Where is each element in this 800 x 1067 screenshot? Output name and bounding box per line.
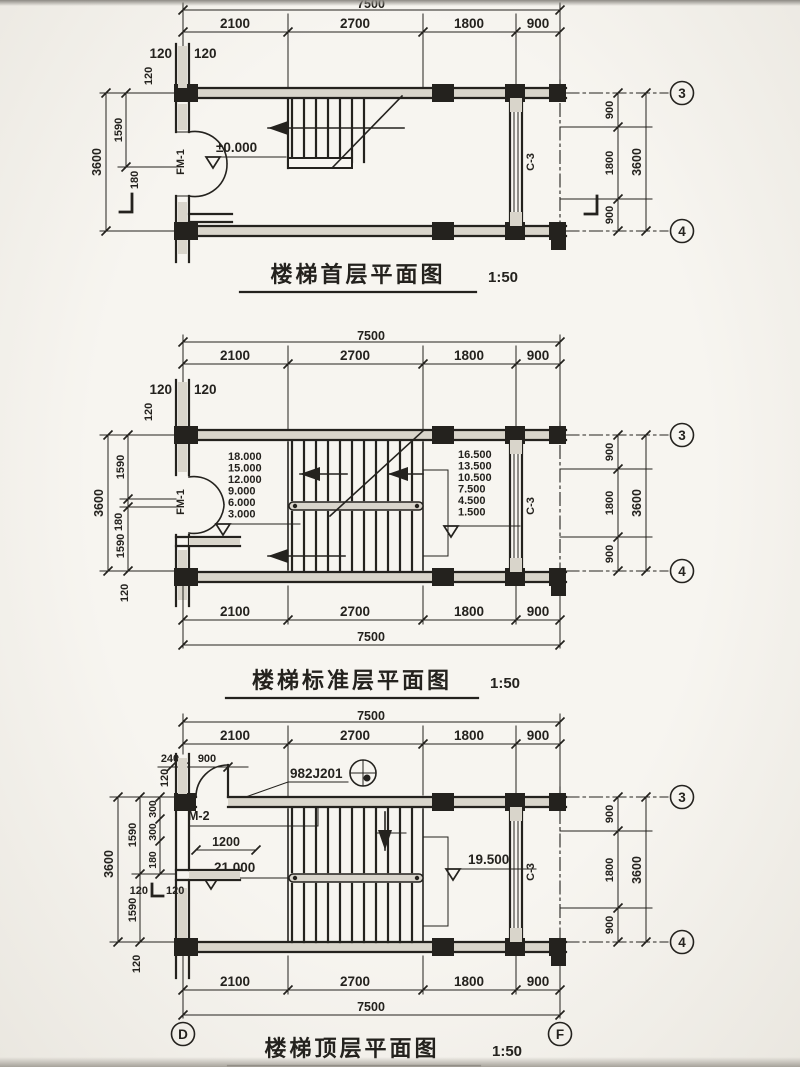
p3-dim-300a: 300: [147, 800, 159, 818]
p2-dim-1800b: 1800: [454, 604, 484, 619]
p3-dim-120-bottom: 120: [131, 955, 143, 973]
p2-level-9000: 9.000: [228, 486, 256, 498]
p2-title-text: 楼梯标准层平面图: [252, 668, 452, 693]
p1-dims-right: 900 1800 900 3600: [560, 80, 668, 246]
p3-dim-1200: 1200: [212, 835, 240, 849]
p3-dim-2700b: 2700: [340, 974, 370, 989]
p1-dim-r1800: 1800: [604, 151, 616, 175]
p3-window-label: C-3: [525, 863, 537, 881]
photo-edge-shadow-bottom: [0, 1057, 800, 1067]
p2-dim-1590a: 1590: [115, 455, 127, 479]
p1-dim-3600-right: 3600: [630, 148, 644, 176]
p3-dim-2100t: 2100: [220, 728, 250, 743]
p2-level-12000: 12.000: [228, 474, 262, 486]
p1-dim-1800: 1800: [454, 16, 484, 31]
axis-bubble-D: D: [178, 1027, 188, 1042]
p2-dim-1800t: 1800: [454, 348, 484, 363]
p1-title-scale: 1:50: [488, 269, 518, 286]
p3-dim-total-top: 7500: [357, 709, 385, 723]
p2-title-scale: 1:50: [490, 675, 520, 692]
axis-bubble-4: 4: [678, 224, 686, 239]
p2-level-16500: 16.500: [458, 449, 492, 461]
p3-dim-r1800: 1800: [604, 858, 616, 882]
p3-axis-bubbles-right: 3 4: [671, 786, 694, 954]
p2-level-13500: 13.500: [458, 461, 492, 473]
plan-top-floor: 7500 2100 2700 1800 900 240 900 982J201 …: [0, 702, 800, 1067]
p2-dim-900b: 900: [527, 604, 550, 619]
p2-level-7500: 7.500: [458, 484, 486, 496]
axis-bubble-3: 3: [678, 790, 686, 805]
handrail: [289, 874, 423, 882]
plan-standard-floor: 7500 2100 2700 1800 900 120 120 120: [0, 330, 800, 702]
p2-dim-2100t: 2100: [220, 348, 250, 363]
p1-window: C-3: [510, 98, 537, 226]
p1-dim-2100: 2100: [220, 16, 250, 31]
p2-level-6000: 6.000: [228, 497, 256, 509]
p3-dim-900t: 900: [527, 728, 550, 743]
p2-dims-bottom: 2100 2700 1800 900 7500: [179, 586, 565, 650]
p3-dim-1590a: 1590: [127, 823, 139, 847]
p2-dims-top: 7500 2100 2700 1800 900 120 120 120: [143, 330, 565, 430]
p2-dim-120-left: 120: [149, 382, 172, 397]
p2-dim-1590b: 1590: [115, 534, 127, 558]
p2-level-10500: 10.500: [458, 472, 492, 484]
p3-dim-1590b: 1590: [127, 898, 139, 922]
axis-bubble-4: 4: [678, 935, 686, 950]
level-triangle-icon: [206, 157, 220, 168]
p3-dim-2100b: 2100: [220, 974, 250, 989]
p1-door-label: FM-1: [175, 149, 187, 175]
p2-dim-120-right: 120: [194, 382, 217, 397]
p1-dim-120-right: 120: [194, 46, 217, 61]
p1-stair-flight: [268, 96, 404, 168]
p3-dim-2700t: 2700: [340, 728, 370, 743]
p2-dims-left: 1590 180 1590 3600 120: [92, 431, 176, 603]
p2-dim-total-bottom: 7500: [357, 630, 385, 644]
p3-level-19500: 19.500: [468, 852, 509, 867]
axis-bubble-3: 3: [678, 428, 686, 443]
p3-door-dims: 240 900: [158, 753, 248, 772]
p3-dim-total-bottom: 7500: [357, 1000, 385, 1014]
p2-dim-120-vert: 120: [143, 403, 155, 421]
section-cut-icon: [120, 194, 132, 212]
p2-level-3000: 3.000: [228, 509, 256, 521]
p2-dim-r900a: 900: [604, 443, 616, 461]
p3-dim-r900a: 900: [604, 805, 616, 823]
p2-dim-120-bottom: 120: [119, 584, 131, 602]
p2-dim-r900b: 900: [604, 545, 616, 563]
p2-dim-2100b: 2100: [220, 604, 250, 619]
p2-level-1500: 1.500: [458, 507, 486, 519]
p2-dim-r1800: 1800: [604, 491, 616, 515]
p2-door-label: FM-1: [175, 489, 187, 515]
p3-dim-180: 180: [147, 851, 159, 869]
p1-title: 楼梯首层平面图 1:50: [240, 262, 518, 292]
p2-level-15000: 15.000: [228, 463, 262, 475]
p1-axis-bubbles: 3 4: [671, 82, 694, 243]
p3-dim-1800b: 1800: [454, 974, 484, 989]
p3-dim-900-door: 900: [198, 753, 216, 765]
axis-bubble-3: 3: [678, 86, 686, 101]
p1-dim-1590: 1590: [113, 118, 125, 142]
drawing-sheet: 7500 2100 2700 1800 900 120 120 120: [0, 0, 800, 1067]
section-cut-icon: [152, 884, 163, 896]
p2-level-18000: 18.000: [228, 451, 262, 463]
axis-bubble-4: 4: [678, 564, 686, 579]
p3-dim-900b: 900: [527, 974, 550, 989]
p2-dim-total-top: 7500: [357, 330, 385, 343]
p1-dims-top: 7500 2100 2700 1800 900: [179, 0, 565, 88]
p3-dim-1800t: 1800: [454, 728, 484, 743]
p2-dim-180: 180: [113, 513, 125, 531]
p1-door: FM-1 180: [120, 131, 227, 212]
p2-dim-2700b: 2700: [340, 604, 370, 619]
p2-title: 楼梯标准层平面图 1:50: [226, 668, 520, 698]
p2-dim-3600-right: 3600: [630, 489, 644, 517]
p3-dims-right: 900 1800 900 3600: [560, 787, 668, 958]
p1-dim-900: 900: [527, 16, 550, 31]
p3-window: C-3: [510, 807, 537, 942]
axis-bubble-F: F: [556, 1027, 564, 1042]
p3-dim-3600-left: 3600: [102, 850, 116, 878]
p2-dim-2700t: 2700: [340, 348, 370, 363]
p3-dims-bottom: 2100 2700 1800 900 7500: [179, 956, 565, 1020]
p2-window-label: C-3: [525, 497, 537, 515]
level-triangle-icon: [216, 524, 230, 535]
p1-dims-left: 1590 3600: [90, 89, 176, 236]
p3-dim-300b: 300: [147, 823, 159, 841]
p1-dim-120-left: 120: [149, 46, 172, 61]
p2-axis-bubbles: 3 4: [671, 424, 694, 583]
plan-first-floor: 7500 2100 2700 1800 900 120 120 120: [0, 0, 800, 300]
p1-dim-r900b: 900: [604, 206, 616, 224]
p3-detail-ref: 982J201: [240, 760, 376, 799]
photo-edge-shadow-top: [0, 0, 800, 6]
p2-stair: [268, 430, 448, 570]
p1-dim-3600-left: 3600: [90, 148, 104, 176]
p2-dim-900t: 900: [527, 348, 550, 363]
p3-stair: [288, 809, 448, 942]
p3-detail-ref-text: 982J201: [290, 766, 343, 781]
p1-window-label: C-3: [525, 153, 537, 171]
p1-dim-2700: 2700: [340, 16, 370, 31]
level-triangle-icon: [444, 526, 458, 537]
p3-dim-3600-right: 3600: [630, 856, 644, 884]
p3-dim-120-mid-b: 120: [166, 885, 184, 897]
p2-dims-right: 900 1800 900 3600: [560, 422, 668, 588]
p1-title-text: 楼梯首层平面图: [270, 262, 445, 287]
p2-window: C-3: [510, 440, 537, 572]
p1-dim-120-vert: 120: [143, 67, 155, 85]
spacer: [0, 300, 800, 330]
p1-dim-r900a: 900: [604, 101, 616, 119]
p3-door-label: M-2: [188, 809, 210, 823]
p3-dims-left: 3600 1590 1590 300 300 180 120 120 120 1…: [102, 769, 184, 973]
p3-dim-120-mid-a: 120: [130, 885, 148, 897]
p2-level-4500: 4.500: [458, 495, 486, 507]
p3-dim-120-top: 120: [159, 769, 171, 787]
p2-dim-3600-left: 3600: [92, 489, 106, 517]
p1-level-mark: ±0.000: [206, 140, 286, 168]
p3-dim-r900b: 900: [604, 916, 616, 934]
p1-dim-180: 180: [129, 171, 141, 189]
p2-levels-right: 16.500 13.500 10.500 7.500 4.500 1.500: [444, 449, 520, 537]
handrail: [289, 502, 423, 510]
